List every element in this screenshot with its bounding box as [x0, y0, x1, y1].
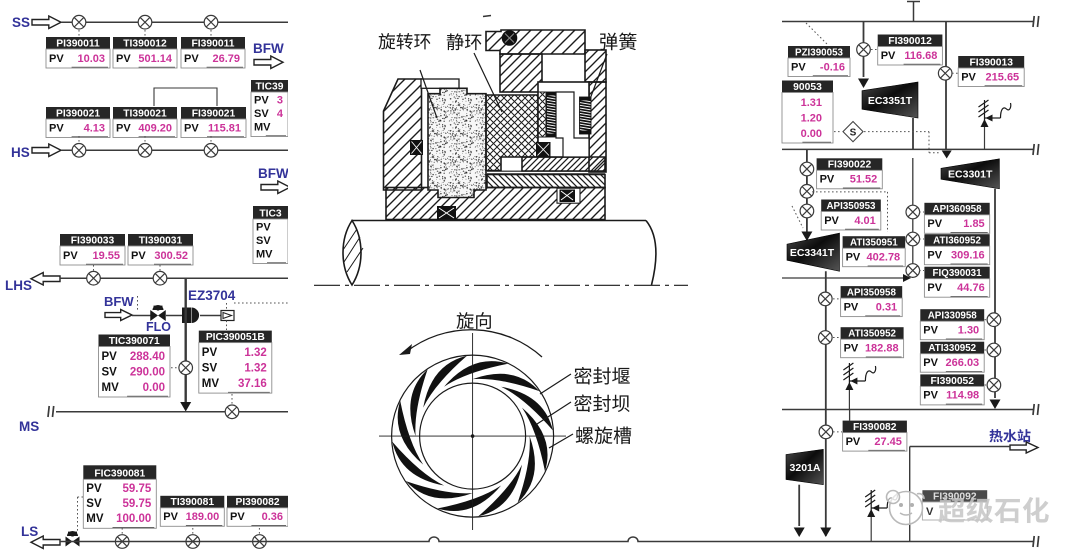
svg-text:1.32: 1.32 [244, 362, 266, 374]
svg-text:100.00: 100.00 [116, 513, 151, 525]
svg-text:59.75: 59.75 [123, 498, 152, 510]
svg-text:BFW: BFW [104, 294, 134, 309]
svg-text:PV: PV [927, 282, 942, 294]
svg-text:PV: PV [202, 347, 218, 359]
svg-text:1.85: 1.85 [963, 218, 984, 230]
svg-text:TIC39: TIC39 [255, 81, 283, 92]
svg-text:MS: MS [19, 419, 39, 434]
svg-text:-0.16: -0.16 [820, 61, 845, 73]
svg-text:182.88: 182.88 [865, 343, 899, 355]
svg-text:0.00: 0.00 [801, 128, 822, 140]
svg-text:PV: PV [86, 483, 102, 495]
svg-text:44.76: 44.76 [957, 282, 985, 294]
svg-text:PV: PV [927, 250, 942, 262]
svg-text:1.32: 1.32 [244, 347, 266, 359]
svg-text:S: S [850, 128, 857, 139]
svg-text:PV: PV [881, 50, 896, 62]
svg-text:EC3301T: EC3301T [948, 169, 993, 181]
svg-text:189.00: 189.00 [186, 511, 220, 523]
svg-text:59.75: 59.75 [123, 483, 152, 495]
svg-text:PV: PV [163, 511, 178, 523]
svg-text:0.36: 0.36 [262, 511, 283, 523]
svg-text:HS: HS [11, 145, 30, 160]
svg-text:BFW: BFW [258, 166, 289, 181]
svg-text:FI390011: FI390011 [192, 38, 235, 49]
svg-text:FI390013: FI390013 [969, 57, 1013, 68]
svg-text:LHS: LHS [5, 278, 32, 293]
svg-text:ATI360952: ATI360952 [933, 236, 981, 247]
svg-text:37.16: 37.16 [238, 378, 267, 390]
svg-text:BFW: BFW [253, 41, 284, 56]
svg-text:MV: MV [102, 382, 120, 394]
svg-text:1.20: 1.20 [801, 112, 822, 124]
svg-text:PV: PV [846, 436, 861, 448]
svg-text:FI390022: FI390022 [828, 160, 872, 171]
svg-text:PV: PV [820, 174, 835, 186]
svg-text:FIC390081: FIC390081 [94, 469, 145, 480]
svg-text:0.31: 0.31 [876, 301, 897, 313]
svg-text:266.03: 266.03 [946, 357, 980, 369]
svg-text:PV: PV [230, 511, 245, 523]
svg-text:PV: PV [49, 53, 64, 65]
svg-text:PV: PV [116, 122, 131, 134]
svg-text:FI390033: FI390033 [71, 235, 115, 246]
svg-text:300.52: 300.52 [154, 250, 188, 262]
svg-text:MV: MV [86, 513, 104, 525]
svg-text:TIC390071: TIC390071 [109, 336, 160, 347]
svg-text:API350958: API350958 [847, 288, 897, 299]
svg-text:MV: MV [256, 248, 273, 260]
svg-text:FI390082: FI390082 [853, 422, 897, 433]
svg-text:3: 3 [277, 94, 283, 106]
svg-text:API330958: API330958 [928, 311, 978, 322]
svg-text:SV: SV [86, 498, 102, 510]
svg-text:PV: PV [923, 357, 938, 369]
svg-text:PI390082: PI390082 [235, 497, 279, 508]
svg-text:FI390021: FI390021 [192, 108, 236, 119]
svg-text:MV: MV [202, 378, 220, 390]
svg-text:309.16: 309.16 [951, 250, 985, 262]
svg-text:90053: 90053 [793, 82, 822, 93]
svg-text:PV: PV [844, 301, 859, 313]
svg-text:26.79: 26.79 [212, 53, 240, 65]
svg-text:4: 4 [277, 108, 284, 120]
svg-text:EC3341T: EC3341T [790, 247, 835, 259]
svg-text:288.40: 288.40 [130, 351, 165, 363]
svg-text:FI390012: FI390012 [888, 36, 932, 47]
svg-text:PIC390051B: PIC390051B [206, 332, 265, 343]
svg-text:PV: PV [184, 53, 199, 65]
svg-text:EZ3704: EZ3704 [188, 288, 236, 303]
svg-text:PV: PV [256, 221, 271, 233]
svg-text:ATI330952: ATI330952 [928, 343, 976, 354]
svg-text:501.14: 501.14 [138, 53, 173, 65]
svg-text:PI390011: PI390011 [56, 38, 100, 49]
svg-text:API350953: API350953 [826, 201, 876, 212]
svg-text:PV: PV [961, 71, 976, 83]
svg-text:PV: PV [824, 215, 839, 227]
svg-text:PV: PV [116, 53, 131, 65]
svg-text:0.00: 0.00 [143, 382, 165, 394]
svg-text:API360958: API360958 [933, 204, 983, 215]
svg-text:10.03: 10.03 [77, 53, 105, 65]
svg-text:1.30: 1.30 [958, 325, 979, 337]
svg-text:19.55: 19.55 [92, 250, 120, 262]
svg-text:PV: PV [184, 122, 199, 134]
svg-text:TI390012: TI390012 [123, 38, 167, 49]
svg-text:TI390081: TI390081 [171, 497, 215, 508]
svg-text:SS: SS [12, 15, 30, 30]
svg-text:ATI350952: ATI350952 [848, 329, 896, 340]
svg-text:27.45: 27.45 [874, 436, 902, 448]
svg-text:409.20: 409.20 [138, 122, 172, 134]
svg-text:LS: LS [21, 524, 38, 539]
svg-text:115.81: 115.81 [208, 122, 241, 134]
svg-text:EC3351T: EC3351T [868, 95, 913, 107]
svg-text:PV: PV [63, 250, 78, 262]
svg-text:PV: PV [102, 351, 118, 363]
svg-text:PV: PV [923, 390, 938, 402]
svg-text:PV: PV [844, 343, 859, 355]
svg-text:114.98: 114.98 [946, 390, 979, 402]
svg-text:116.68: 116.68 [904, 50, 937, 62]
svg-text:SV: SV [256, 235, 271, 247]
svg-text:1.31: 1.31 [801, 97, 822, 109]
svg-text:PZI390053: PZI390053 [795, 47, 843, 58]
svg-text:PV: PV [846, 252, 861, 264]
svg-text:TI390031: TI390031 [139, 235, 183, 246]
svg-text:ATI350951: ATI350951 [850, 238, 898, 249]
svg-text:PV: PV [131, 250, 146, 262]
svg-text:SV: SV [102, 366, 118, 378]
svg-text:SV: SV [202, 362, 218, 374]
svg-text:V: V [926, 506, 934, 518]
svg-text:4.13: 4.13 [84, 122, 105, 134]
svg-text:PV: PV [927, 218, 942, 230]
svg-text:PV: PV [254, 94, 269, 106]
svg-text:MV: MV [254, 121, 271, 133]
svg-text:TI390021: TI390021 [123, 108, 167, 119]
svg-text:PV: PV [791, 61, 806, 73]
svg-text:FLO: FLO [146, 320, 171, 334]
svg-text:PV: PV [923, 325, 938, 337]
svg-text:PV: PV [49, 122, 64, 134]
svg-text:PI390021: PI390021 [56, 108, 100, 119]
svg-text:FIQ390031: FIQ390031 [933, 268, 983, 279]
svg-text:215.65: 215.65 [986, 71, 1020, 83]
svg-text:402.78: 402.78 [867, 252, 901, 264]
svg-text:51.52: 51.52 [850, 174, 878, 186]
svg-text:290.00: 290.00 [130, 366, 165, 378]
svg-text:TIC3: TIC3 [259, 208, 282, 219]
svg-text:SV: SV [254, 108, 269, 120]
svg-text:3201A: 3201A [790, 462, 821, 474]
svg-text:FI390052: FI390052 [930, 376, 974, 387]
svg-text:4.01: 4.01 [854, 215, 875, 227]
